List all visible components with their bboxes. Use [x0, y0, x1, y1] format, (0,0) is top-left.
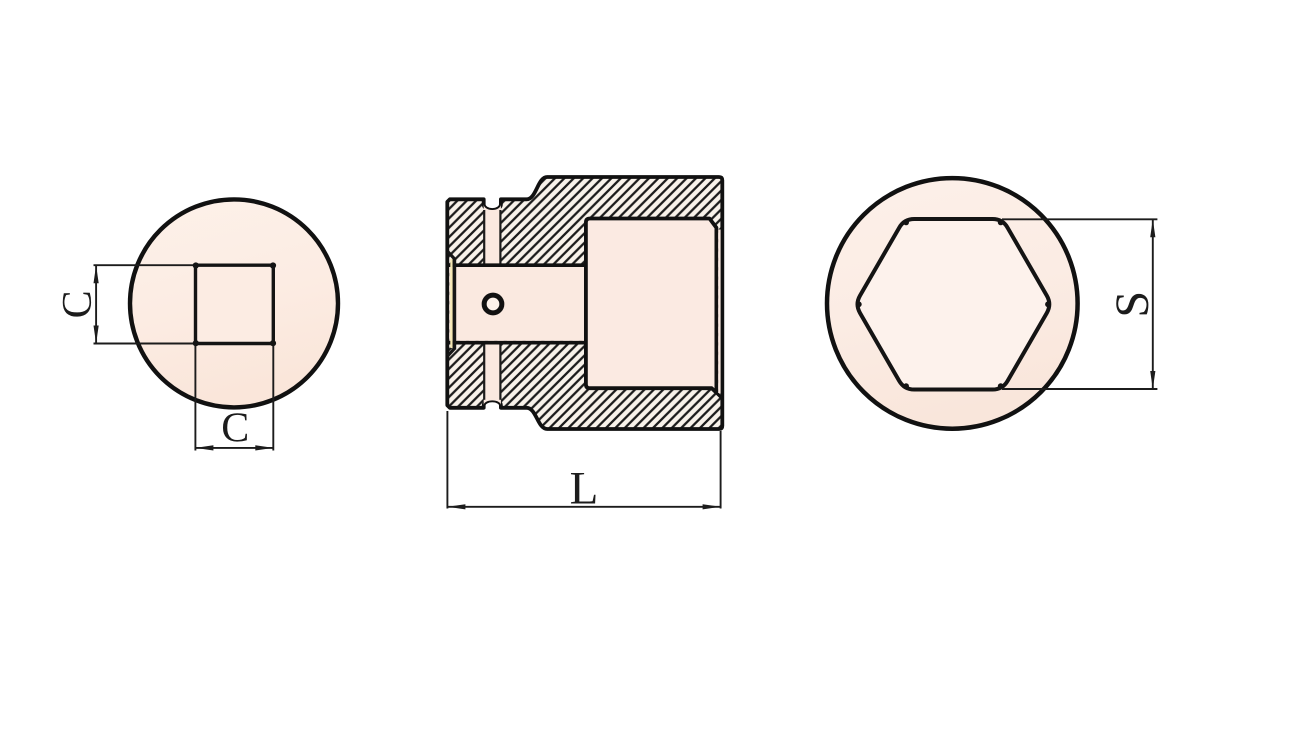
svg-text:L: L [570, 462, 599, 514]
svg-text:S: S [1106, 291, 1159, 318]
svg-text:C: C [55, 290, 101, 318]
svg-text:C: C [221, 406, 249, 452]
